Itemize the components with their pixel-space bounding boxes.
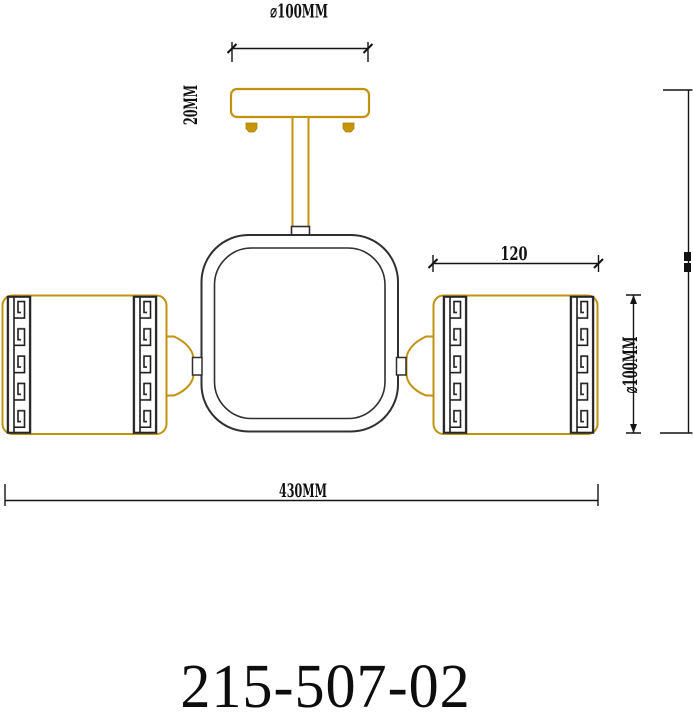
screw-left — [246, 123, 257, 132]
screw-right — [343, 123, 354, 132]
ceiling-canopy — [231, 89, 369, 117]
fixture-drawing: ⌀100MM 20MM — [0, 0, 693, 720]
dim-canopy-diameter-label: ⌀100MM — [270, 1, 328, 23]
left-socket-dome — [168, 337, 194, 396]
dim-overall-width: 430MM — [5, 480, 598, 506]
dim-canopy-height-label: 20MM — [180, 85, 202, 125]
left-arm-connector — [193, 358, 203, 376]
meander-band-right-inner — [444, 297, 467, 434]
right-arm-connector — [397, 358, 407, 376]
dim-shade-height-label: ⌀100MM — [618, 337, 642, 394]
meander-band-right-outer — [571, 297, 594, 434]
dim-shade-height: ⌀100MM — [618, 295, 642, 433]
dim-arm-length: 120 — [429, 243, 604, 272]
stem-rod — [293, 117, 309, 227]
dim-overall-width-label: 430MM — [279, 480, 327, 502]
meander-band-left-inner — [134, 297, 157, 434]
frame-outer — [202, 235, 399, 432]
right-socket-dome — [407, 337, 433, 396]
product-code: 215-507-02 — [0, 652, 662, 720]
dim-overall-height-clipped — [660, 90, 693, 433]
clipped-dimension-label — [684, 252, 691, 272]
drawing-sheet: ⌀100MM 20MM — [0, 0, 693, 720]
dim-arm-length-label: 120 — [501, 243, 528, 265]
meander-band-left-outer — [8, 297, 31, 434]
dim-canopy-diameter: ⌀100MM — [228, 1, 373, 63]
